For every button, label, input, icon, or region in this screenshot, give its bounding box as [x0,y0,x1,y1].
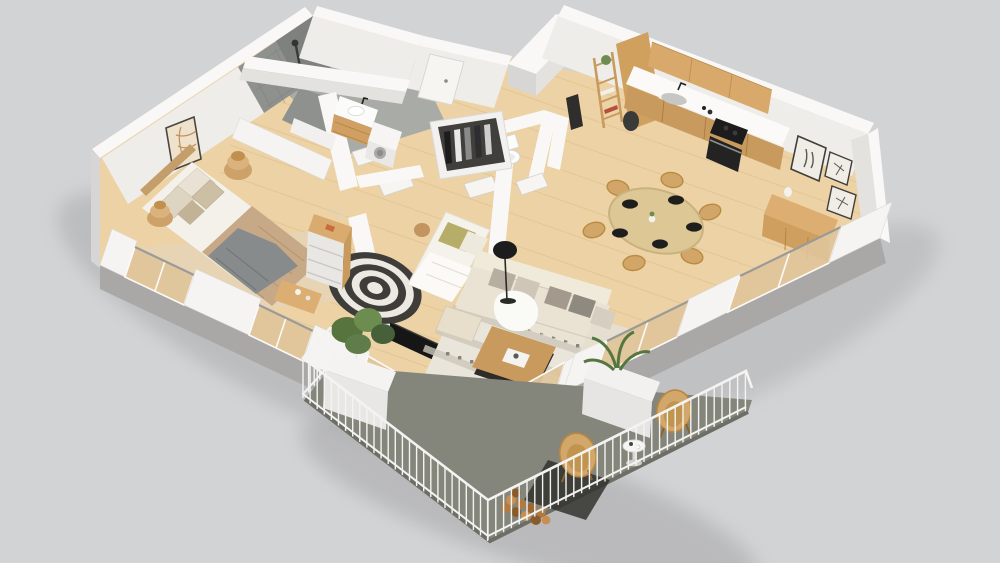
laundry-basket [623,111,639,131]
render-canvas [0,0,1000,563]
entry-wardrobe [430,111,512,179]
counter-bottle-2 [708,110,713,115]
basin [348,106,364,115]
apartment-floorplan-render [0,0,1000,563]
door-handle-icon [444,79,448,83]
centerpiece [649,216,656,223]
shelf-plant-icon [601,55,611,65]
counter-bottle [702,106,706,110]
woven-basket [414,223,430,237]
shower-head-icon [292,40,299,47]
table-vase [513,353,518,358]
coffee-cup-icon [629,442,633,446]
west-wall-outer-face [91,151,100,268]
vase [784,187,792,197]
